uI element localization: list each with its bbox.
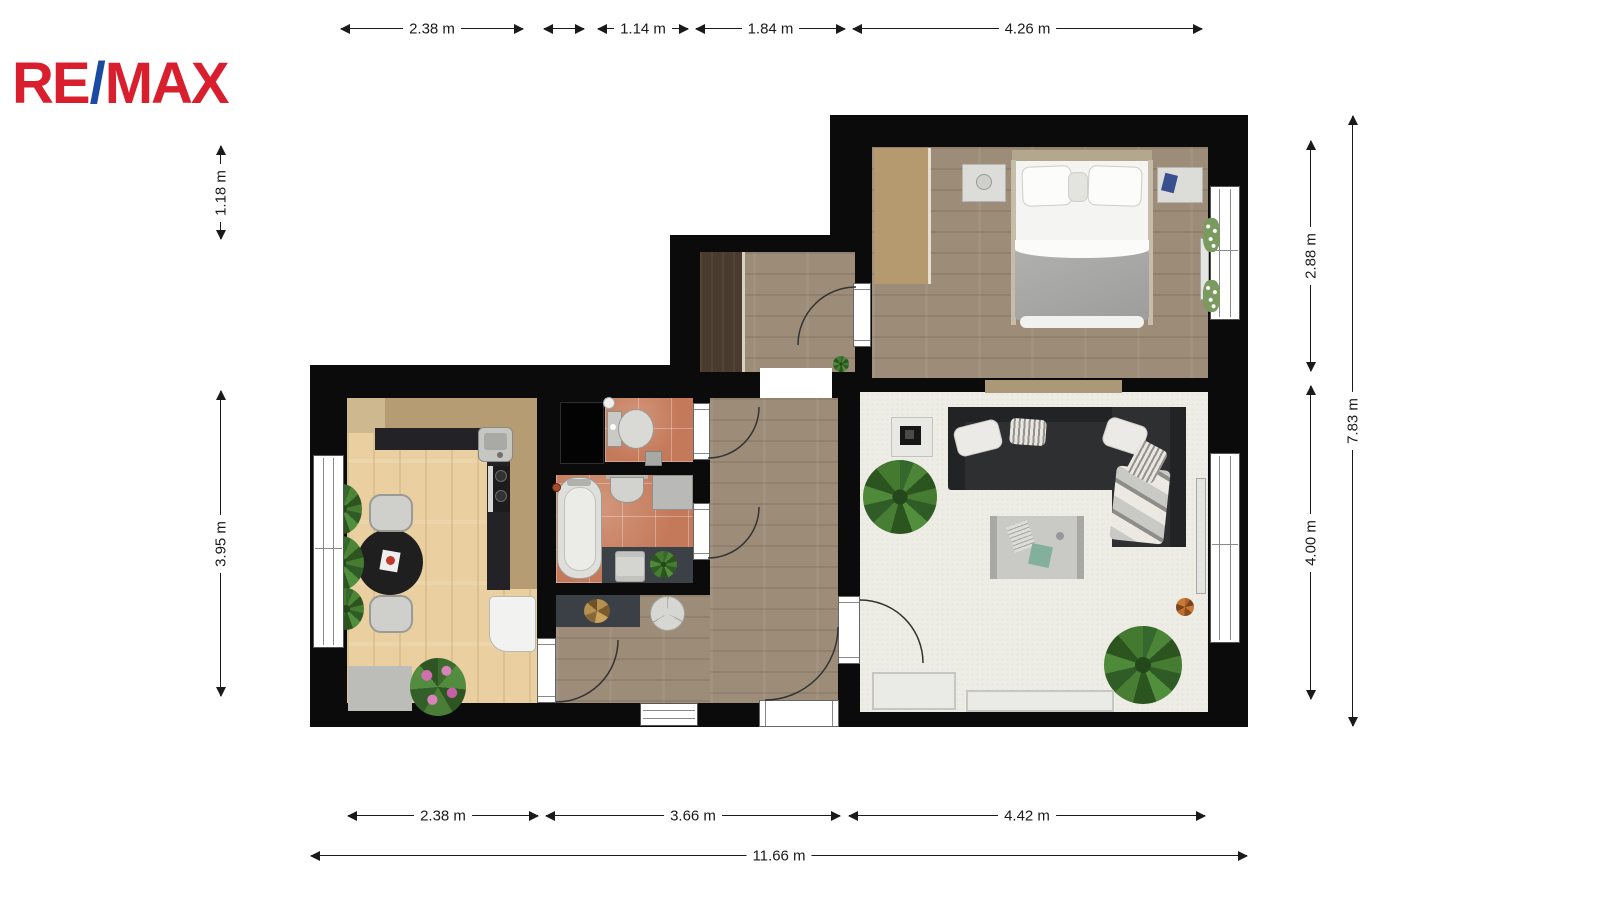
dim-top-1-label: 2.38 m (403, 21, 461, 38)
dim-top-3: 1.14 m (597, 20, 689, 37)
dim-left-2-label: 3.95 m (213, 515, 230, 573)
dim-right-1-label: 2.88 m (1303, 227, 1320, 285)
dim-bottom-3: 4.42 m (848, 807, 1206, 824)
dim-right-2: 4.00 m (1302, 385, 1319, 700)
dim-left-1-label: 1.18 m (213, 164, 230, 222)
dim-top-3-label: 1.14 m (614, 21, 672, 38)
dim-left-1: 1.18 m (212, 145, 229, 240)
dim-top-4-label: 1.84 m (742, 21, 800, 38)
dim-bottom-2-label: 3.66 m (664, 808, 722, 825)
dim-bottom-1-label: 2.38 m (414, 808, 472, 825)
dim-right-1: 2.88 m (1302, 140, 1319, 372)
dim-right-3: 7.83 m (1344, 115, 1361, 727)
dim-left-2: 3.95 m (212, 390, 229, 697)
dim-bottom-3-label: 4.42 m (998, 808, 1056, 825)
floorplan-page: RE/MAX (0, 0, 1600, 900)
dim-bottom-2: 3.66 m (545, 807, 841, 824)
dim-top-1: 2.38 m (340, 20, 524, 37)
dim-top-5: 4.26 m (852, 20, 1203, 37)
dim-bottom-total-label: 11.66 m (746, 848, 811, 865)
dim-top-4: 1.84 m (695, 20, 846, 37)
dim-top-2 (543, 20, 585, 37)
dim-right-3-label: 7.83 m (1345, 392, 1362, 450)
dim-right-2-label: 4.00 m (1303, 514, 1320, 572)
dim-bottom-1: 2.38 m (347, 807, 539, 824)
dim-top-5-label: 4.26 m (999, 21, 1057, 38)
dim-bottom-total: 11.66 m (310, 847, 1248, 864)
